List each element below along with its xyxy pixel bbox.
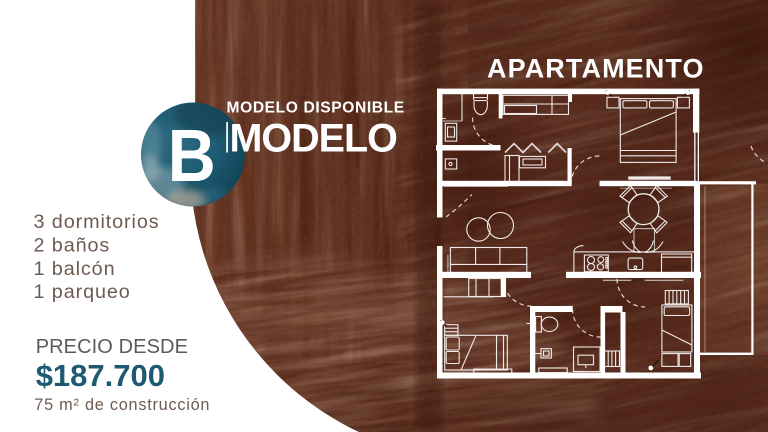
svg-text:1 balcón: 1 balcón — [34, 258, 116, 280]
svg-text:PRECIO DESDE: PRECIO DESDE — [36, 336, 188, 358]
svg-text:MODELO DISPONIBLE: MODELO DISPONIBLE — [227, 100, 405, 117]
svg-text:APARTAMENTO: APARTAMENTO — [487, 53, 705, 83]
svg-text:75 m² de construcción: 75 m² de construcción — [34, 396, 210, 414]
svg-text:B: B — [168, 114, 216, 197]
svg-text:MODELO: MODELO — [230, 117, 398, 161]
svg-text:2 baños: 2 baños — [34, 234, 111, 256]
svg-text:$187.700: $187.700 — [36, 358, 165, 393]
svg-text:3 dormitorios: 3 dormitorios — [34, 211, 160, 233]
svg-text:1 parqueo: 1 parqueo — [34, 281, 131, 303]
